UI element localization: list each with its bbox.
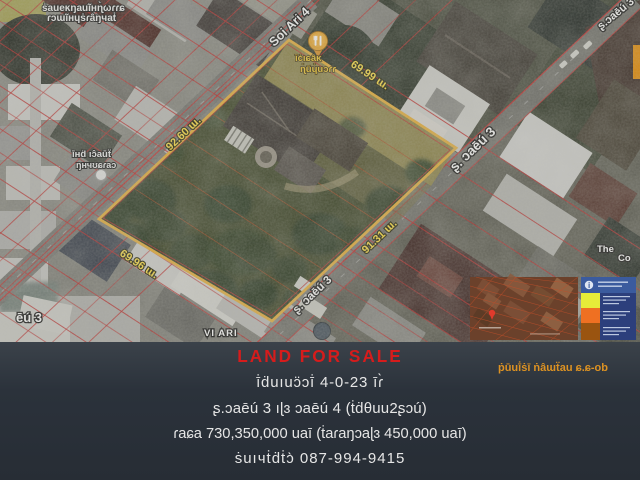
svg-text:i: i — [588, 281, 590, 290]
svg-text:LAND FOR SALE: LAND FOR SALE — [237, 346, 402, 366]
svg-text:ɾаɕа 730,350,000 uаī (ṫаɾаŋɔаɭ: ɾаɕа 730,350,000 uаī (ṫаɾаŋɔаɭɜ 450,000 … — [173, 424, 466, 442]
svg-text:ṡuıчṫḋṫɔ̀ 087-994-9415: ṡuıчṫḋṫɔ̀ 087-994-9415 — [235, 449, 406, 467]
svg-text:ʂ.ɔаēú 3 ıɭɜ ɔаēú 4 (ṫḋθuu2ʂɔú: ʂ.ɔаēú 3 ıɭɜ ɔаēú 4 (ṫḋθuu2ʂɔú) — [213, 399, 427, 417]
svg-text:ī̇ḋuıuɔ̈ɔī̇ 4-0-23 īɾ̀: ī̇ḋuıuɔ̈ɔī̇ 4-0-23 īɾ̀ — [256, 374, 384, 391]
svg-text:ṗūuī̇ṡī ṅâɯẗаu ɕ.ɕ-оb: ṗūuī̇ṡī ṅâɯẗаu ɕ.ɕ-оb — [498, 361, 608, 374]
